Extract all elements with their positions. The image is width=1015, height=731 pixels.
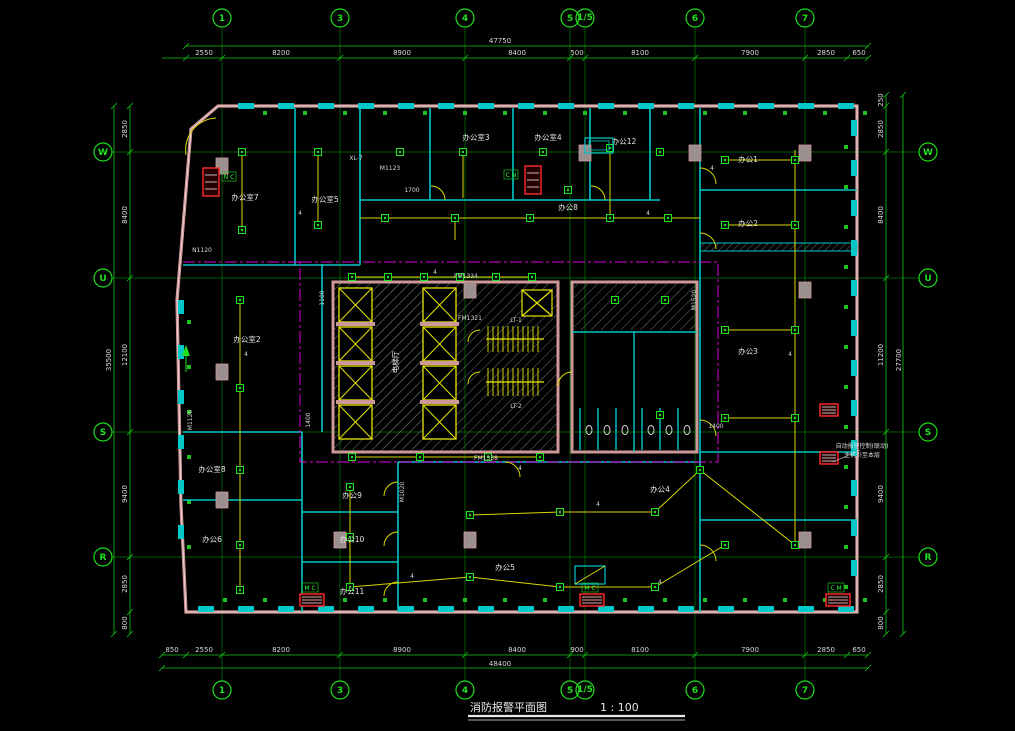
elevator-shaft <box>423 288 456 322</box>
wall-detector-tick <box>223 598 227 602</box>
wall-detector-tick <box>463 598 467 602</box>
room-label: 办公室5 <box>311 194 338 204</box>
room-label: 办公4 <box>650 484 670 494</box>
axis-top-7: 7 <box>802 14 808 24</box>
dim-bottom-seg: 8200 <box>272 646 290 654</box>
door-swing-arc <box>384 532 398 546</box>
circuit-wire <box>655 470 795 545</box>
smoke-detector <box>349 454 356 461</box>
detector-dot <box>387 276 389 278</box>
dim-top-seg: 8400 <box>508 49 526 57</box>
window <box>798 606 814 612</box>
wall-detector-tick <box>383 111 387 115</box>
smoke-detector <box>697 467 704 474</box>
room-label: 办公3 <box>738 346 758 356</box>
smoke-detector <box>382 215 389 222</box>
detector-dot <box>349 486 351 488</box>
dim-right-seg: 2850 <box>877 575 885 593</box>
detector-dot <box>239 544 241 546</box>
window <box>438 103 454 109</box>
window <box>318 103 334 109</box>
detector-dot <box>609 217 611 219</box>
toilet-fixtures <box>586 426 690 435</box>
fire-hydrant-cabinet <box>525 166 541 194</box>
room-label: 办公11 <box>340 586 365 596</box>
room-label: 办公室4 <box>534 132 561 142</box>
stair-label-2: LT-2 <box>510 403 522 410</box>
axis-right-w: W <box>923 148 933 158</box>
dim-bottom-overall: 48400 <box>489 660 511 668</box>
wall-detector-tick <box>503 598 507 602</box>
window <box>718 606 734 612</box>
window <box>851 360 857 376</box>
axis-top-6: 6 <box>692 14 698 24</box>
window <box>638 606 654 612</box>
smoke-detector <box>665 215 672 222</box>
door-swing-arc <box>591 186 605 200</box>
wire-count-tag: 4 <box>658 579 662 586</box>
door-tag: M1520 <box>691 290 698 311</box>
window <box>851 560 857 576</box>
smoke-detector <box>722 222 729 229</box>
column <box>799 145 811 161</box>
fire-door-tag: FM1334 <box>454 273 478 280</box>
axis-top-5: 5 <box>567 14 573 24</box>
window <box>518 103 534 109</box>
wall-detector-tick <box>463 111 467 115</box>
detector-dot <box>239 299 241 301</box>
wall-detector-tick <box>263 111 267 115</box>
window <box>178 480 184 494</box>
detector-dot <box>667 217 669 219</box>
fire-hydrant-cabinet <box>580 594 604 606</box>
detector-dot <box>724 159 726 161</box>
smoke-detector <box>397 149 404 156</box>
window <box>478 103 494 109</box>
smoke-detector <box>237 467 244 474</box>
window <box>478 606 494 612</box>
elevator-shaft <box>423 327 456 361</box>
window <box>398 606 414 612</box>
smoke-detector <box>527 215 534 222</box>
window <box>598 606 614 612</box>
dim-right-seg: 9400 <box>877 485 885 503</box>
door-tag: M1123 <box>380 165 401 172</box>
dim-left-seg: 800 <box>121 616 129 629</box>
window <box>851 320 857 336</box>
smoke-detector <box>657 149 664 156</box>
detector-dot <box>399 151 401 153</box>
elevator-core: 电梯厅 LT-1 LT-2 <box>333 282 558 452</box>
axis-bottom-3: 3 <box>337 686 343 696</box>
smoke-detector <box>792 222 799 229</box>
smoke-detector <box>722 415 729 422</box>
smoke-detector <box>237 297 244 304</box>
dim-right-overall: 27700 <box>895 349 903 371</box>
fire-hydrant-cabinet <box>203 168 219 196</box>
wall-detector-tick <box>623 598 627 602</box>
detector-dot <box>794 329 796 331</box>
detector-dot <box>724 417 726 419</box>
window <box>758 103 774 109</box>
smoke-detector <box>722 157 729 164</box>
fire-hydrant-cabinet <box>300 594 324 606</box>
axis-top-3: 3 <box>337 14 343 24</box>
smoke-detector <box>237 587 244 594</box>
wall-detector-tick <box>844 305 848 309</box>
wall-detector-tick <box>663 111 667 115</box>
detector-dot <box>317 151 319 153</box>
window <box>398 103 414 109</box>
dim-top-overall: 47750 <box>489 37 511 45</box>
detector-dot <box>664 299 666 301</box>
smoke-detector <box>557 584 564 591</box>
elevator-shaft <box>423 405 456 439</box>
smoke-detector <box>612 297 619 304</box>
wall-detector-tick <box>503 111 507 115</box>
annotation-line1: 自动报警控制(联动) <box>836 442 889 450</box>
window <box>238 103 254 109</box>
hatched-wall-band <box>700 243 857 251</box>
wire-count-tag: 4 <box>244 351 248 358</box>
wall-detector-tick <box>863 111 867 115</box>
detector-dot <box>462 151 464 153</box>
door-tag: M1120 <box>187 410 194 431</box>
stair-label-1: LT-1 <box>510 317 522 324</box>
circuit-wire <box>350 545 725 587</box>
room-label: 办公6 <box>202 534 222 544</box>
column <box>799 282 811 298</box>
wall-detector-tick <box>703 598 707 602</box>
column <box>464 532 476 548</box>
axis-left-r: R <box>100 553 107 563</box>
fire-hydrant-cabinet <box>826 594 850 606</box>
wire-count-tag: 4 <box>788 351 792 358</box>
room-label: 办公室2 <box>233 334 260 344</box>
detector-dot <box>724 224 726 226</box>
wall-detector-tick <box>783 598 787 602</box>
wall-detector-tick <box>743 598 747 602</box>
dim-top-seg: 8200 <box>272 49 290 57</box>
drawing-scale: 1 : 100 <box>600 701 639 714</box>
axis-left-w: W <box>98 148 108 158</box>
wire-count-tag: 4 <box>596 501 600 508</box>
detector-dot <box>654 511 656 513</box>
column <box>464 282 476 298</box>
smoke-detector <box>792 157 799 164</box>
elevator-shaft <box>423 366 456 400</box>
detector-dot <box>794 224 796 226</box>
window <box>851 400 857 416</box>
dim-left-seg: 8400 <box>121 206 129 224</box>
dim-right-seg: 2850 <box>877 120 885 138</box>
wall-detector-tick <box>783 111 787 115</box>
window <box>851 280 857 296</box>
equipment-tag: C M <box>830 585 841 592</box>
window <box>178 525 184 539</box>
room-label: 办公10 <box>340 534 365 544</box>
detector-dot <box>419 456 421 458</box>
room-label: 办公8 <box>558 202 578 212</box>
window <box>598 103 614 109</box>
window <box>318 606 334 612</box>
wall-detector-tick <box>383 598 387 602</box>
cad-drawing-viewport: 1 3 4 5 1/5 6 7 1 3 4 5 1/5 6 7 W U S R … <box>0 0 1015 731</box>
door-swing-arc <box>384 482 398 496</box>
window <box>838 103 854 109</box>
wall-detector-tick <box>187 365 191 369</box>
smoke-detector <box>540 149 547 156</box>
wall-detector-tick <box>423 598 427 602</box>
detector-dot <box>794 544 796 546</box>
elevator-shaft <box>339 405 372 439</box>
room-label: 办公室7 <box>231 192 258 202</box>
detector-dot <box>351 276 353 278</box>
smoke-detector <box>349 274 356 281</box>
riser-tag: XL-7 <box>349 155 363 162</box>
detector-dot <box>699 469 701 471</box>
window <box>238 606 254 612</box>
smoke-detector <box>722 327 729 334</box>
dim-left-seg: 2850 <box>121 120 129 138</box>
dim-left-seg: 2850 <box>121 575 129 593</box>
smoke-detector <box>467 574 474 581</box>
axis-bottom-5: 5 <box>567 686 573 696</box>
window <box>678 606 694 612</box>
wall-detector-tick <box>583 111 587 115</box>
detector-dot <box>794 417 796 419</box>
smoke-detector <box>529 274 536 281</box>
wall-detector-tick <box>844 185 848 189</box>
axis-right-r: R <box>925 553 932 563</box>
window <box>558 103 574 109</box>
detector-dot <box>567 189 569 191</box>
damper-blade <box>575 566 605 584</box>
column <box>799 532 811 548</box>
annotation-line2: 主机引至本层 <box>844 451 880 459</box>
fire-hydrant-cabinet <box>820 404 838 416</box>
service-elevator <box>522 290 552 316</box>
smoke-detector <box>652 509 659 516</box>
smoke-detector <box>792 415 799 422</box>
axis-right-u: U <box>924 274 931 284</box>
dim-bottom-seg: 8400 <box>508 646 526 654</box>
window <box>851 480 857 496</box>
wire-count-tag: 4 <box>433 269 437 276</box>
detector-dot <box>239 387 241 389</box>
smoke-detector <box>237 542 244 549</box>
room-label-lobby: 电梯厅 <box>390 350 400 373</box>
washroom-block <box>572 282 697 452</box>
dim-bottom-seg: 900 <box>570 646 583 654</box>
dim-bottom-seg: 650 <box>852 646 865 654</box>
window <box>678 103 694 109</box>
wall-detector-tick <box>623 111 627 115</box>
detector-dot <box>539 456 541 458</box>
room-label: 办公5 <box>495 562 515 572</box>
detector-dot <box>351 456 353 458</box>
wall-detector-tick <box>844 145 848 149</box>
wall-detector-tick <box>343 598 347 602</box>
window <box>198 606 214 612</box>
dim-top-seg: 2550 <box>195 49 213 57</box>
room-label: 办公2 <box>738 218 758 228</box>
detector-dot <box>724 329 726 331</box>
smoke-detector <box>493 274 500 281</box>
wall-detector-tick <box>187 320 191 324</box>
wall-detector-tick <box>343 111 347 115</box>
window <box>851 160 857 176</box>
window <box>851 120 857 136</box>
elevator-shaft <box>339 327 372 361</box>
fire-door-tag: FM1338 <box>474 455 498 462</box>
smoke-detector <box>662 297 669 304</box>
dim-bottom-seg: 2550 <box>195 646 213 654</box>
equipment-tag: M C <box>304 585 315 592</box>
dim-left-seg: 9400 <box>121 485 129 503</box>
column <box>689 145 701 161</box>
room-label: 办公1 <box>738 154 758 164</box>
axis-top-1: 1 <box>219 14 225 24</box>
wall-detector-tick <box>863 598 867 602</box>
dim-bottom-seg: 850 <box>165 646 178 654</box>
smoke-detector <box>467 512 474 519</box>
dim-top-seg: 500 <box>570 49 583 57</box>
window <box>358 606 374 612</box>
equipment-tag: M C <box>584 585 595 592</box>
wall-detector-tick <box>703 111 707 115</box>
detector-dot <box>529 217 531 219</box>
dim-bottom-seg: 8100 <box>631 646 649 654</box>
window <box>278 103 294 109</box>
smoke-detector <box>607 215 614 222</box>
wire-count-tag: 4 <box>710 165 714 172</box>
window <box>278 606 294 612</box>
dim-bottom-seg: 7900 <box>741 646 759 654</box>
window <box>838 606 854 612</box>
smoke-detector <box>347 484 354 491</box>
title-block: 消防报警平面图 1 : 100 <box>468 700 685 720</box>
elevator-shaft <box>339 288 372 322</box>
smoke-detector <box>460 149 467 156</box>
detector-dot <box>239 469 241 471</box>
smoke-detector <box>237 385 244 392</box>
detector-dot <box>239 589 241 591</box>
dim-top-seg: 8900 <box>393 49 411 57</box>
wall-detector-tick <box>844 265 848 269</box>
window <box>638 103 654 109</box>
wall-detector-tick <box>543 111 547 115</box>
door-swing-arc <box>431 186 445 200</box>
smoke-detector <box>417 454 424 461</box>
detector-dot <box>495 276 497 278</box>
detector-dot <box>659 151 661 153</box>
smoke-detector <box>239 227 246 234</box>
dim-left-overall: 35500 <box>105 349 113 371</box>
local-dim: 1400 <box>305 412 312 427</box>
detector-dot <box>724 544 726 546</box>
window <box>178 390 184 404</box>
wall-detector-tick <box>303 111 307 115</box>
detector-dot <box>241 229 243 231</box>
wall-detector-tick <box>187 545 191 549</box>
axis-top-4: 4 <box>462 14 468 24</box>
dim-bottom-seg: 8900 <box>393 646 411 654</box>
wall-detector-tick <box>844 585 848 589</box>
detector-dot <box>654 586 656 588</box>
local-dim: 1100 <box>319 290 326 305</box>
wire-count-tag: 4 <box>298 210 302 217</box>
detector-dot <box>317 224 319 226</box>
window <box>178 435 184 449</box>
door-tag: N1120 <box>192 247 212 254</box>
dim-right-seg: 11200 <box>877 344 885 366</box>
wall-detector-tick <box>844 545 848 549</box>
wall-detector-tick <box>743 111 747 115</box>
wire-count-tag: 4 <box>646 210 650 217</box>
dim-left-seg: 12100 <box>121 344 129 366</box>
detector-dot <box>384 217 386 219</box>
wall-detector-tick <box>844 425 848 429</box>
axis-bottom-4: 4 <box>462 686 468 696</box>
axis-bottom-6: 6 <box>692 686 698 696</box>
window <box>178 345 184 359</box>
detector-dot <box>469 576 471 578</box>
smoke-detector <box>792 327 799 334</box>
axis-bottom-1: 1 <box>219 686 225 696</box>
window <box>758 606 774 612</box>
floor-plan-canvas: 1 3 4 5 1/5 6 7 1 3 4 5 1/5 6 7 W U S R … <box>0 0 1015 731</box>
fire-hydrant-cabinet <box>820 452 838 464</box>
wall-detector-tick <box>423 111 427 115</box>
wall-detector-tick <box>823 111 827 115</box>
window <box>518 606 534 612</box>
dim-top-seg: 2850 <box>817 49 835 57</box>
smoke-detector <box>315 222 322 229</box>
dim-bottom-seg: 2850 <box>817 646 835 654</box>
smoke-detector <box>239 149 246 156</box>
detector-dot <box>794 159 796 161</box>
room-label: 办公9 <box>342 490 362 500</box>
wall-detector-tick <box>844 225 848 229</box>
wall-detector-tick <box>844 345 848 349</box>
detector-dot <box>423 276 425 278</box>
smoke-detector <box>792 542 799 549</box>
detector-dot <box>542 151 544 153</box>
wall-detector-tick <box>844 385 848 389</box>
column <box>216 492 228 508</box>
dim-right-seg: 8400 <box>877 206 885 224</box>
wall-detector-tick <box>263 598 267 602</box>
smoke-detector <box>722 542 729 549</box>
wall-detector-tick <box>844 505 848 509</box>
fire-door-tag: FM1321 <box>458 315 482 322</box>
axis-top-1-5: 1/5 <box>577 13 593 23</box>
smoke-detector <box>557 509 564 516</box>
column <box>216 364 228 380</box>
equipment-tag: N C <box>224 174 235 181</box>
door-tag: M1020 <box>399 482 406 503</box>
axis-bottom-1-5: 1/5 <box>577 685 593 695</box>
dim-right-seg: 250 <box>877 93 885 106</box>
window <box>178 300 184 314</box>
detector-dot <box>241 151 243 153</box>
dim-right-seg: 800 <box>877 616 885 629</box>
room-label: 办公室3 <box>462 132 489 142</box>
window <box>798 103 814 109</box>
detector-dot <box>531 276 533 278</box>
wall-detector-tick <box>543 598 547 602</box>
